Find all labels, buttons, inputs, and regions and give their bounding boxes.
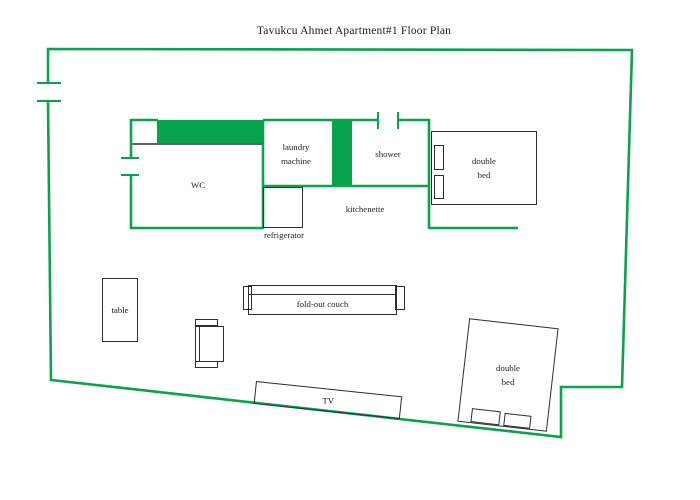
room-label-kitchenette: kitchenette xyxy=(325,202,405,216)
double-bed-bottom-label: double bed xyxy=(464,324,552,426)
tv-label: TV xyxy=(322,395,334,405)
double-bed-bottom: double bed xyxy=(457,318,558,432)
armchair-armrest-bottom xyxy=(195,361,218,368)
fold-out-couch: fold-out couch xyxy=(248,285,397,315)
refrigerator xyxy=(263,187,303,228)
double-bed-top: double bed xyxy=(431,131,537,205)
room-label-refrigerator: refrigerator xyxy=(246,228,322,242)
armchair-armrest-top xyxy=(195,319,218,326)
laundry-shower-divider xyxy=(332,120,352,186)
floor-plan-canvas: Tavukcu Ahmet Apartment#1 Floor Plan dou… xyxy=(0,0,700,500)
table: table xyxy=(102,278,138,342)
wc-wall-mass xyxy=(157,120,263,143)
room-label-laundry-machine: laundry machine xyxy=(261,140,331,168)
armchair-seat xyxy=(199,326,224,362)
room-label-shower: shower xyxy=(358,147,418,161)
fold-out-couch-label: fold-out couch xyxy=(249,294,396,314)
double-bed-top-label: double bed xyxy=(432,132,536,204)
table-label: table xyxy=(111,305,128,315)
room-label-wc: WC xyxy=(168,178,228,192)
apartment-walls xyxy=(0,0,700,500)
